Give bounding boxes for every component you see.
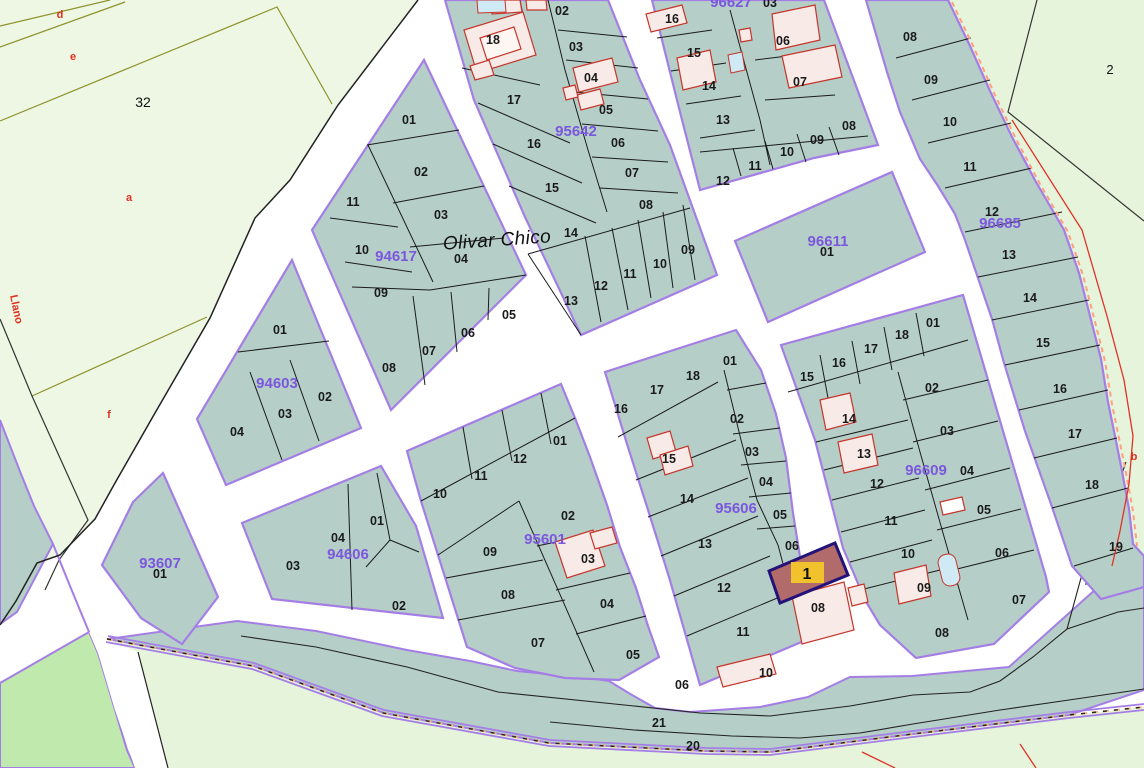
- svg-text:07: 07: [422, 344, 436, 358]
- svg-text:11: 11: [346, 195, 359, 209]
- svg-text:12: 12: [870, 477, 884, 491]
- svg-text:01: 01: [273, 323, 287, 337]
- svg-text:10: 10: [759, 666, 773, 680]
- svg-text:03: 03: [581, 552, 595, 566]
- svg-text:18: 18: [1085, 478, 1099, 492]
- svg-text:94617: 94617: [375, 248, 417, 265]
- svg-text:05: 05: [977, 503, 991, 517]
- svg-text:1: 1: [803, 566, 812, 583]
- svg-text:03: 03: [278, 407, 292, 421]
- svg-text:2: 2: [1106, 62, 1113, 77]
- svg-text:04: 04: [759, 475, 773, 489]
- svg-text:16: 16: [665, 12, 679, 26]
- svg-text:15: 15: [662, 452, 676, 466]
- svg-text:07: 07: [1012, 593, 1026, 607]
- svg-text:02: 02: [561, 509, 575, 523]
- svg-text:12: 12: [716, 174, 730, 188]
- svg-text:13: 13: [564, 294, 578, 308]
- svg-text:17: 17: [650, 383, 664, 397]
- svg-text:08: 08: [382, 361, 396, 375]
- svg-text:05: 05: [773, 508, 787, 522]
- svg-text:03: 03: [940, 424, 954, 438]
- svg-text:17: 17: [864, 342, 878, 356]
- svg-text:13: 13: [1002, 248, 1016, 262]
- svg-text:16: 16: [832, 356, 846, 370]
- svg-text:09: 09: [924, 73, 938, 87]
- svg-text:20: 20: [686, 739, 700, 753]
- svg-text:16: 16: [527, 137, 541, 151]
- svg-text:06: 06: [611, 136, 625, 150]
- svg-text:f: f: [107, 409, 111, 421]
- svg-text:15: 15: [687, 46, 701, 60]
- svg-text:06: 06: [785, 539, 799, 553]
- svg-text:14: 14: [564, 226, 578, 240]
- svg-text:03: 03: [569, 40, 583, 54]
- svg-text:02: 02: [318, 390, 332, 404]
- svg-text:04: 04: [454, 252, 468, 266]
- svg-text:05: 05: [626, 648, 640, 662]
- svg-text:11: 11: [963, 160, 976, 174]
- svg-text:05: 05: [599, 103, 613, 117]
- svg-text:10: 10: [780, 145, 794, 159]
- svg-text:96627: 96627: [710, 0, 752, 11]
- svg-text:96609: 96609: [905, 462, 947, 479]
- svg-text:08: 08: [903, 30, 917, 44]
- svg-text:06: 06: [675, 678, 689, 692]
- svg-text:95601: 95601: [524, 531, 566, 548]
- svg-text:32: 32: [135, 94, 151, 110]
- svg-text:09: 09: [917, 581, 931, 595]
- svg-text:14: 14: [680, 492, 694, 506]
- svg-text:01: 01: [153, 567, 167, 581]
- svg-text:07: 07: [625, 166, 639, 180]
- svg-text:10: 10: [901, 547, 915, 561]
- svg-text:05: 05: [502, 308, 516, 322]
- svg-text:07: 07: [531, 636, 545, 650]
- svg-text:15: 15: [1036, 336, 1050, 350]
- svg-text:11: 11: [474, 469, 487, 483]
- svg-text:13: 13: [716, 113, 730, 127]
- svg-text:15: 15: [545, 181, 559, 195]
- svg-text:95642: 95642: [555, 123, 597, 140]
- svg-text:16: 16: [614, 402, 628, 416]
- svg-text:18: 18: [486, 33, 500, 47]
- svg-text:09: 09: [810, 133, 824, 147]
- svg-text:94606: 94606: [327, 546, 369, 563]
- svg-text:21: 21: [652, 716, 666, 730]
- svg-text:11: 11: [748, 159, 761, 173]
- svg-text:08: 08: [842, 119, 856, 133]
- svg-text:10: 10: [653, 257, 667, 271]
- svg-text:17: 17: [507, 93, 521, 107]
- svg-text:14: 14: [702, 79, 716, 93]
- svg-text:11: 11: [736, 625, 749, 639]
- svg-text:18: 18: [686, 369, 700, 383]
- svg-text:02: 02: [730, 412, 744, 426]
- svg-text:13: 13: [857, 447, 871, 461]
- svg-text:04: 04: [600, 597, 614, 611]
- svg-text:04: 04: [230, 425, 244, 439]
- svg-text:04: 04: [584, 71, 598, 85]
- svg-text:09: 09: [681, 243, 695, 257]
- svg-text:01: 01: [926, 316, 940, 330]
- svg-text:03: 03: [763, 0, 777, 10]
- svg-text:b: b: [1131, 451, 1138, 463]
- svg-text:12: 12: [513, 452, 527, 466]
- svg-text:02: 02: [392, 599, 406, 613]
- svg-text:08: 08: [811, 601, 825, 615]
- svg-text:06: 06: [776, 34, 790, 48]
- svg-text:19: 19: [1109, 540, 1123, 554]
- svg-text:04: 04: [331, 531, 345, 545]
- svg-text:07: 07: [793, 75, 807, 89]
- svg-text:15: 15: [800, 370, 814, 384]
- svg-text:01: 01: [553, 434, 567, 448]
- svg-text:01: 01: [370, 514, 384, 528]
- svg-text:02: 02: [925, 381, 939, 395]
- svg-text:d: d: [57, 9, 64, 21]
- svg-text:17: 17: [1068, 427, 1082, 441]
- svg-text:12: 12: [985, 205, 999, 219]
- svg-text:16: 16: [1053, 382, 1067, 396]
- svg-text:09: 09: [374, 286, 388, 300]
- svg-text:03: 03: [286, 559, 300, 573]
- svg-text:13: 13: [698, 537, 712, 551]
- svg-text:12: 12: [717, 581, 731, 595]
- svg-text:08: 08: [935, 626, 949, 640]
- svg-text:09: 09: [483, 545, 497, 559]
- svg-text:a: a: [126, 192, 133, 204]
- svg-text:06: 06: [995, 546, 1009, 560]
- svg-text:e: e: [70, 51, 76, 63]
- svg-text:10: 10: [355, 243, 369, 257]
- svg-text:14: 14: [1023, 291, 1037, 305]
- svg-text:11: 11: [623, 267, 636, 281]
- svg-text:03: 03: [434, 208, 448, 222]
- svg-text:95606: 95606: [715, 500, 757, 517]
- svg-text:02: 02: [555, 4, 569, 18]
- svg-text:03: 03: [745, 445, 759, 459]
- svg-text:08: 08: [501, 588, 515, 602]
- svg-text:14: 14: [842, 412, 856, 426]
- svg-text:06: 06: [461, 326, 475, 340]
- svg-text:02: 02: [414, 165, 428, 179]
- svg-text:10: 10: [943, 115, 957, 129]
- svg-text:94603: 94603: [256, 375, 298, 392]
- svg-text:08: 08: [639, 198, 653, 212]
- svg-text:18: 18: [895, 328, 909, 342]
- svg-text:10: 10: [433, 487, 447, 501]
- svg-text:12: 12: [594, 279, 608, 293]
- svg-text:11: 11: [884, 514, 897, 528]
- svg-text:01: 01: [723, 354, 737, 368]
- svg-text:01: 01: [820, 245, 834, 259]
- svg-text:04: 04: [960, 464, 974, 478]
- svg-text:01: 01: [402, 113, 416, 127]
